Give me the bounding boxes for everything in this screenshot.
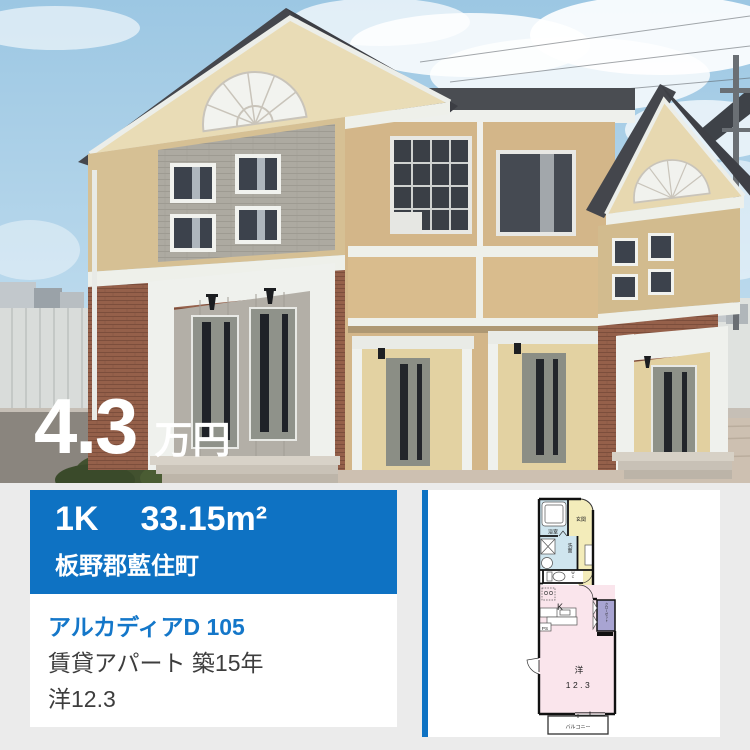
door bbox=[386, 358, 430, 466]
door bbox=[652, 366, 696, 464]
building-middle-section bbox=[335, 88, 635, 470]
property-name-link[interactable]: アルカディアD 105 bbox=[48, 609, 397, 645]
downpipe bbox=[477, 122, 483, 246]
price-overlay: 4.3 万円 bbox=[34, 387, 230, 465]
ps-label: PS bbox=[542, 626, 548, 631]
steps bbox=[612, 452, 734, 479]
right-entrance bbox=[612, 326, 734, 479]
room-size-label: 12.3 bbox=[566, 680, 593, 690]
lantern-icon bbox=[378, 348, 385, 359]
bath-label: 浴室 bbox=[548, 529, 558, 536]
floorplan-card[interactable]: 浴室 玄関 洗面 WC K PS クローゼット 洋 12.3 バルコニー bbox=[422, 490, 720, 737]
floorplan-diagram: 浴室 玄関 洗面 WC K PS クローゼット 洋 12.3 バルコニー bbox=[523, 490, 670, 737]
property-photo[interactable]: 4.3 万円 bbox=[0, 0, 750, 483]
details-card: アルカディアD 105 賃貸アパート 築15年 洋12.3 bbox=[30, 594, 397, 727]
door bbox=[250, 308, 296, 440]
wc-label: WC bbox=[571, 571, 575, 579]
summary-card: 1K 33.15m² 板野郡藍住町 bbox=[30, 490, 397, 594]
price-unit: 万円 bbox=[154, 422, 230, 460]
shoe-cabinet-icon bbox=[585, 545, 593, 565]
closet-label: クローゼット bbox=[604, 601, 608, 622]
layout-type: 1K bbox=[55, 500, 98, 539]
window-dark bbox=[496, 150, 576, 236]
floor-area: 33.15m² bbox=[140, 500, 267, 539]
entrance-label: 玄関 bbox=[576, 516, 586, 523]
property-rooms: 洋12.3 bbox=[48, 681, 397, 717]
balcony-label: バルコニー bbox=[566, 725, 591, 731]
door bbox=[522, 353, 566, 463]
toilet-icon bbox=[547, 572, 552, 581]
balcony bbox=[348, 246, 616, 333]
sink-icon bbox=[542, 558, 553, 569]
property-location: 板野郡藍住町 bbox=[55, 546, 397, 581]
summary-line: 1K 33.15m² bbox=[55, 500, 397, 539]
price-value: 4.3 bbox=[34, 387, 136, 465]
room-type-label: 洋 bbox=[575, 665, 584, 675]
ac-unit bbox=[390, 212, 422, 234]
kitchen-label: K bbox=[557, 602, 563, 612]
counter-bar bbox=[597, 632, 613, 636]
washroom-label: 洗面 bbox=[567, 542, 572, 554]
lantern-icon bbox=[514, 343, 521, 354]
property-type-age: 賃貸アパート 築15年 bbox=[48, 645, 397, 681]
listing-page: 4.3 万円 1K 33.15m² 板野郡藍住町 アルカディアD 105 賃貸ア… bbox=[0, 0, 750, 750]
